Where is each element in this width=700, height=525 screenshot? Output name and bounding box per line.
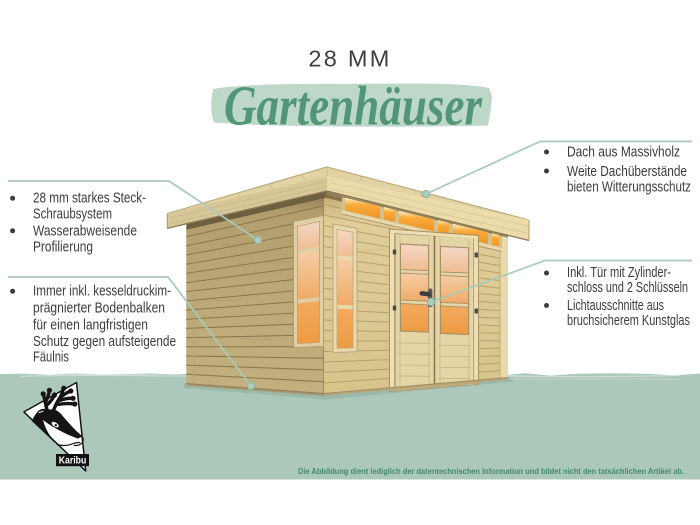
- svg-text:28 mm starkes Steck-: 28 mm starkes Steck-: [33, 190, 146, 206]
- svg-text:für einen langfristigen: für einen langfristigen: [33, 317, 148, 333]
- svg-text:Schutz gegen aufsteigende: Schutz gegen aufsteigende: [33, 334, 176, 350]
- svg-text:Schraubsystem: Schraubsystem: [33, 207, 112, 223]
- svg-text:Fäulnis: Fäulnis: [33, 350, 69, 366]
- svg-text:Immer inkl. kesseldruckim-: Immer inkl. kesseldruckim-: [33, 284, 171, 300]
- svg-text:bruchsicherem Kunstglas: bruchsicherem Kunstglas: [567, 313, 690, 329]
- svg-text:Inkl. Tür mit Zylinder-: Inkl. Tür mit Zylinder-: [567, 265, 671, 281]
- svg-text:Wasserabweisende: Wasserabweisende: [33, 223, 137, 239]
- svg-text:28 MM: 28 MM: [308, 45, 391, 71]
- svg-text:schloss und 2 Schlüsseln: schloss und 2 Schlüsseln: [567, 280, 688, 296]
- svg-text:Gartenhäuser: Gartenhäuser: [224, 76, 483, 138]
- svg-text:prägnierter Bodenbalken: prägnierter Bodenbalken: [33, 301, 165, 317]
- svg-text:Die Abbildung dient lediglich: Die Abbildung dient lediglich der datent…: [298, 466, 684, 476]
- svg-text:Profilierung: Profilierung: [33, 240, 93, 256]
- svg-text:Karibu: Karibu: [59, 456, 87, 467]
- svg-text:bieten Witterungsschutz: bieten Witterungsschutz: [567, 179, 691, 195]
- svg-text:Lichtausschnitte aus: Lichtausschnitte aus: [567, 298, 664, 314]
- svg-text:Weite Dachüberstände: Weite Dachüberstände: [567, 164, 687, 180]
- svg-text:Dach aus Massivholz: Dach aus Massivholz: [567, 144, 680, 160]
